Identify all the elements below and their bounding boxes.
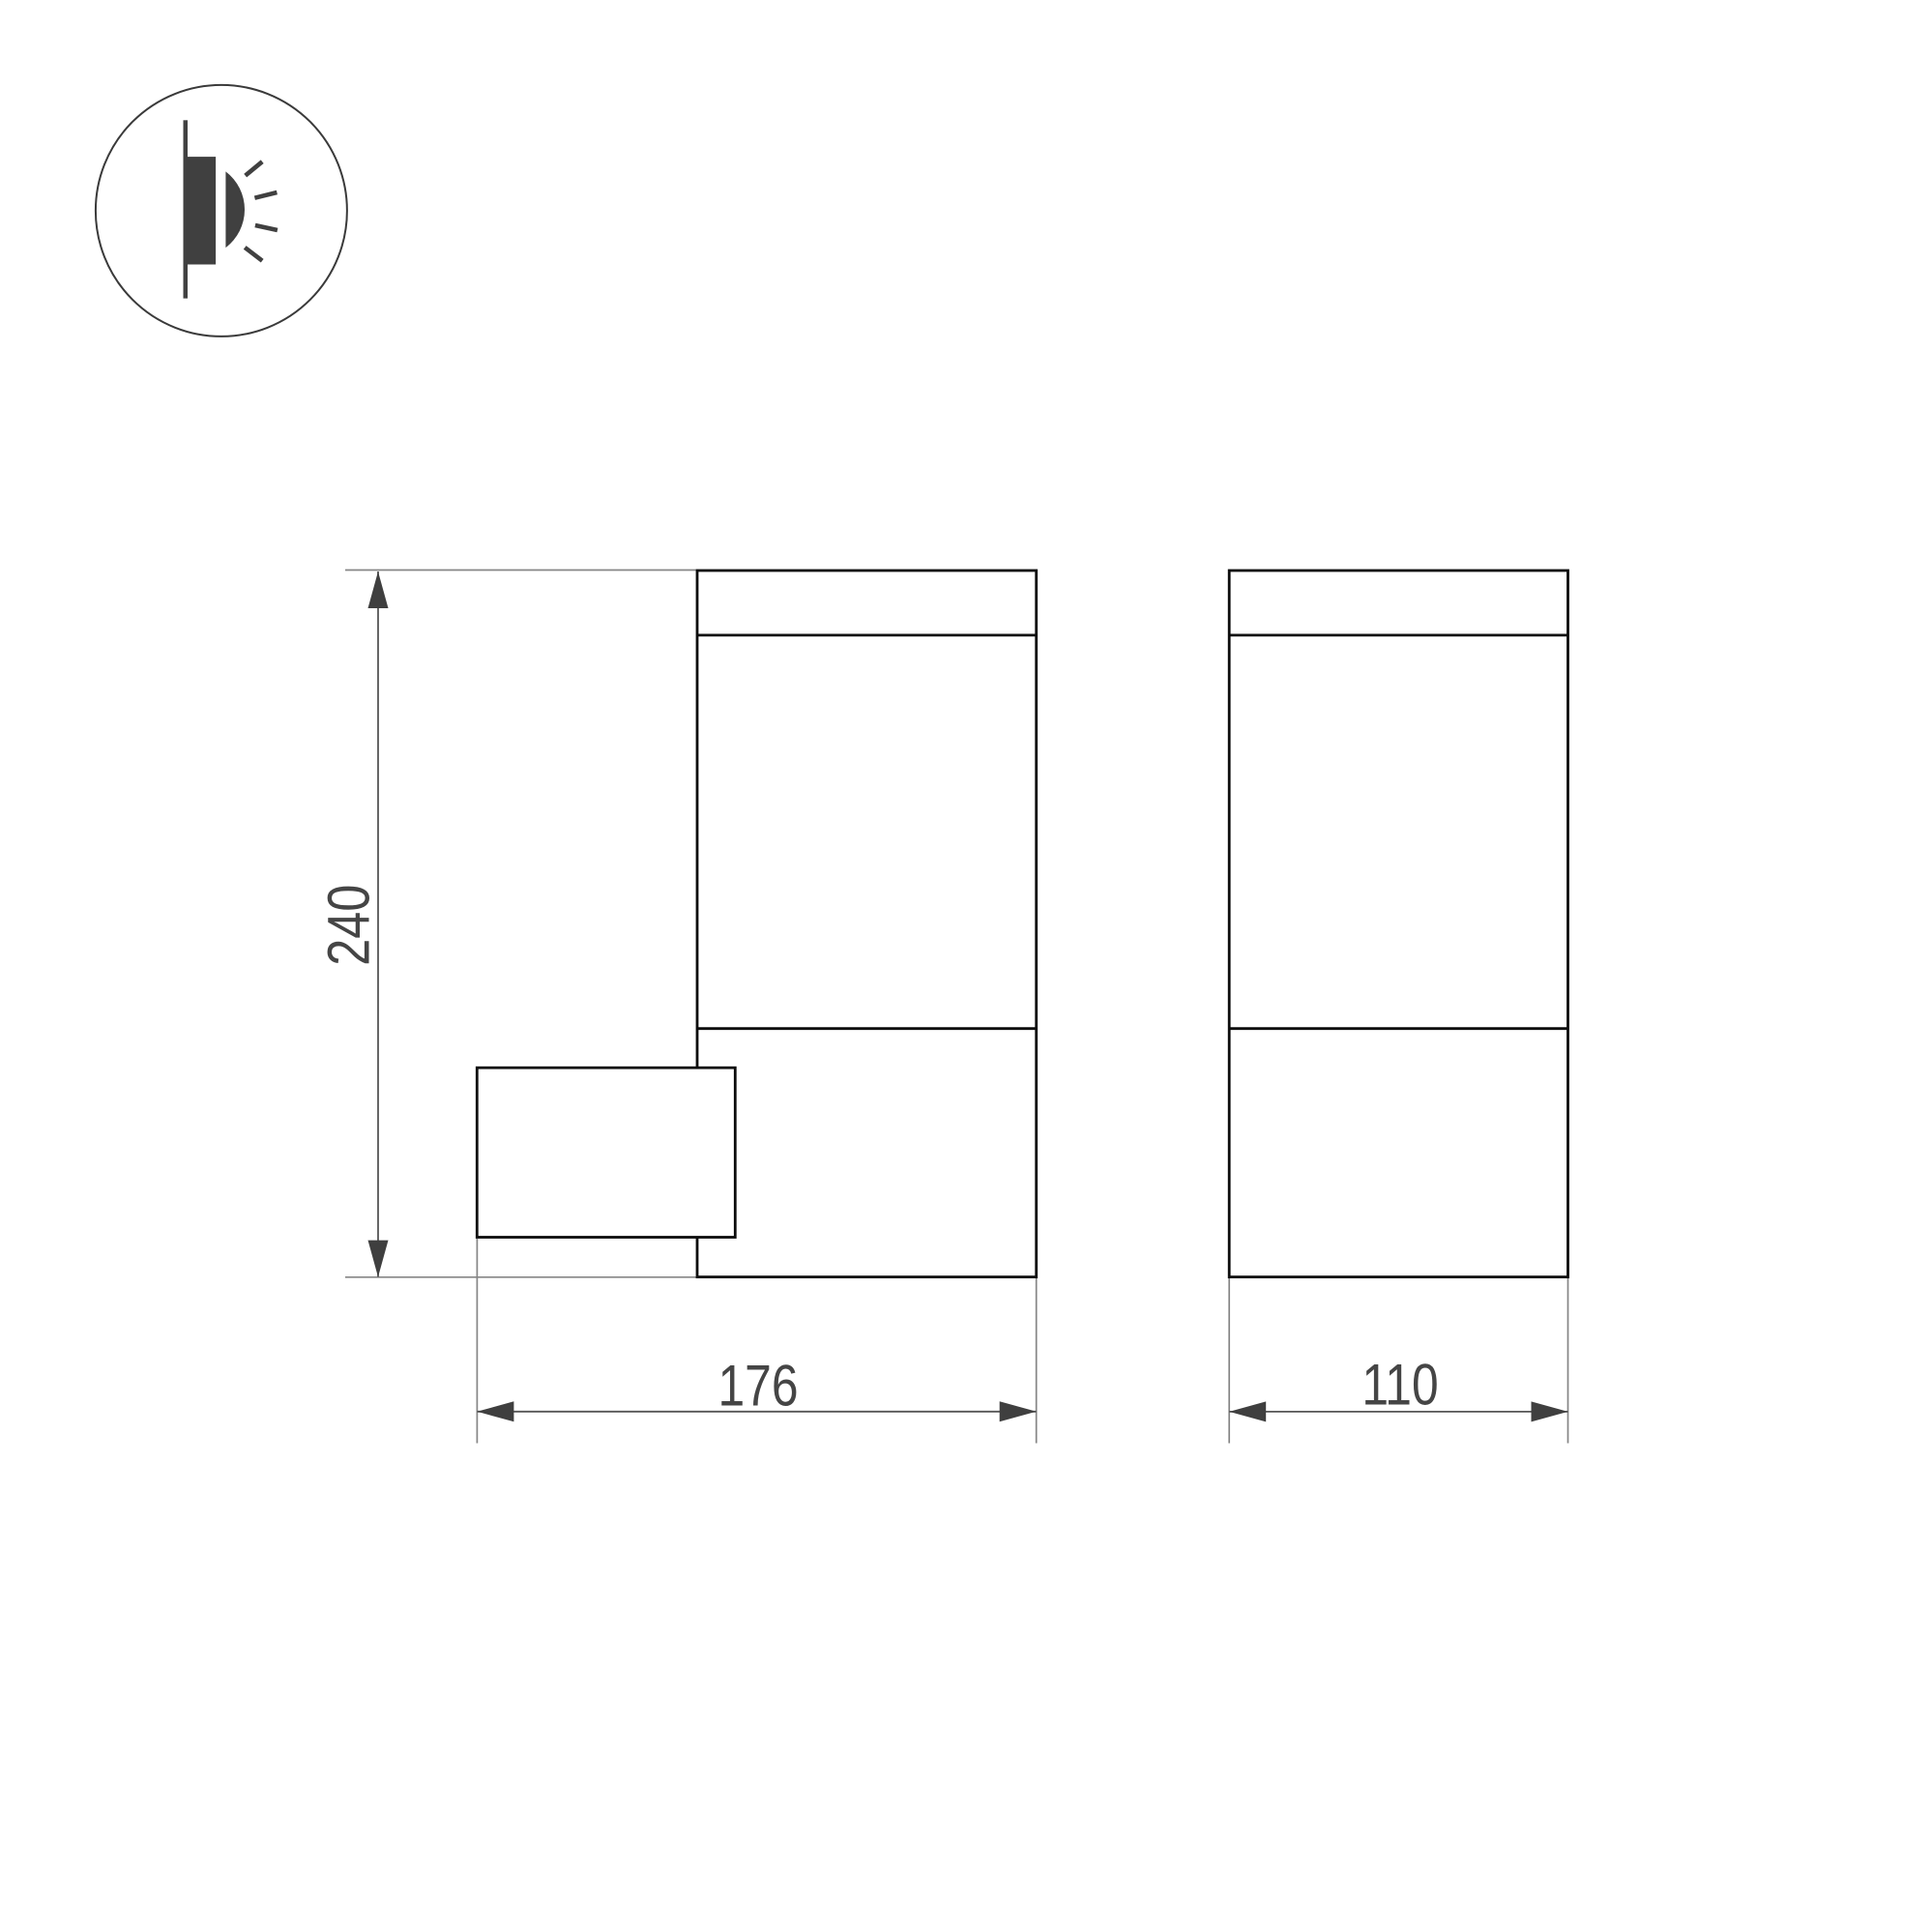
svg-text:240: 240	[315, 885, 382, 966]
svg-text:176: 176	[717, 1353, 798, 1418]
svg-text:110: 110	[1361, 1352, 1438, 1417]
